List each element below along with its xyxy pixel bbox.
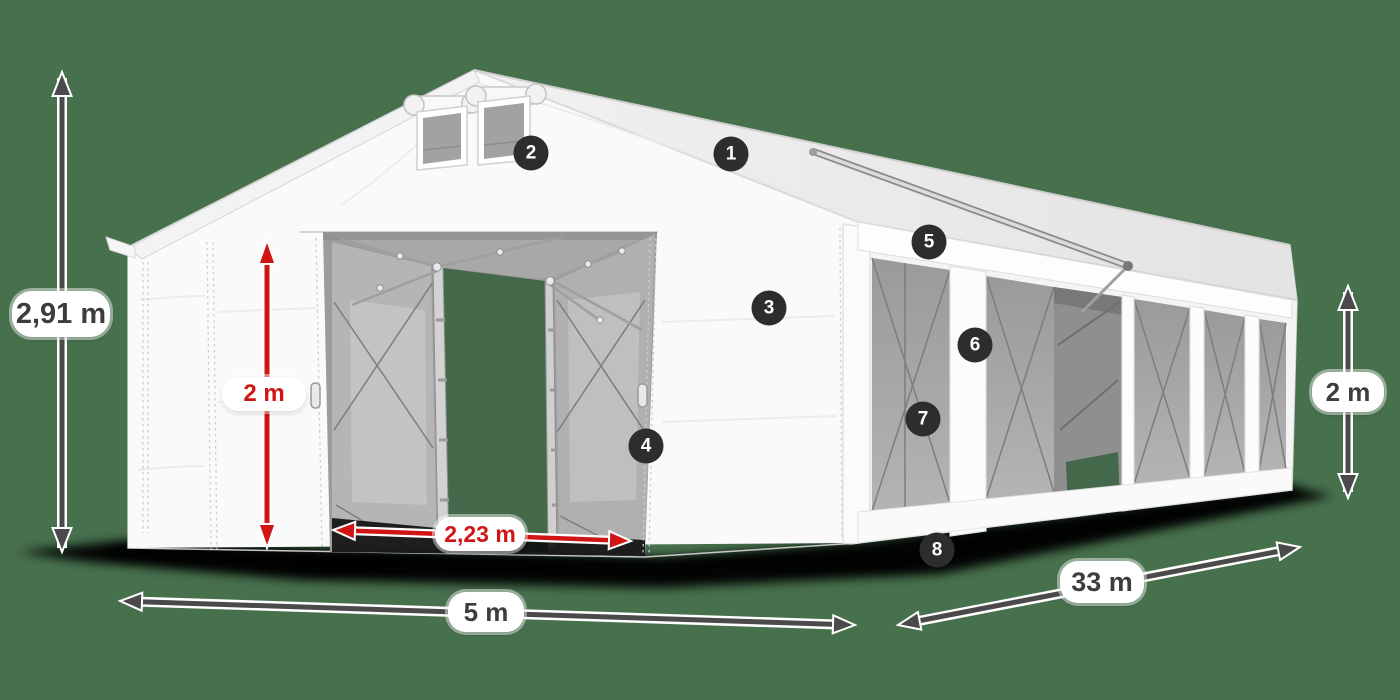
eave-corner bbox=[106, 237, 135, 258]
feature-badge-5: 5 bbox=[912, 225, 947, 260]
feature-badge-6: 6 bbox=[958, 328, 993, 363]
label-length: 33 m bbox=[1060, 561, 1144, 603]
open-passage bbox=[443, 268, 549, 552]
feature-badge-3: 3 bbox=[752, 291, 787, 326]
feature-badge-8: 8 bbox=[920, 533, 955, 568]
door-handle-right bbox=[638, 384, 647, 407]
corner-post bbox=[843, 224, 870, 544]
label-side-height: 2 m bbox=[1312, 372, 1384, 412]
label-front-width: 5 m bbox=[448, 592, 524, 632]
feature-badge-4: 4 bbox=[629, 429, 664, 464]
feature-badge-1: 1 bbox=[714, 137, 749, 172]
label-door-width: 2,23 m bbox=[435, 517, 525, 551]
label-total-height: 2,91 m bbox=[12, 291, 110, 337]
feature-badge-2: 2 bbox=[514, 136, 549, 171]
door-handle-left bbox=[311, 383, 320, 408]
tent-dimension-diagram: 2,91 m 2 m 2,23 m 5 m 33 m 2 m 1 2 3 4 5… bbox=[0, 0, 1400, 700]
feature-badge-7: 7 bbox=[906, 402, 941, 437]
door-opening bbox=[323, 232, 657, 556]
vent-mesh bbox=[423, 113, 461, 164]
label-door-height: 2 m bbox=[222, 377, 306, 411]
open-side-bay bbox=[1054, 287, 1122, 519]
tent-illustration bbox=[0, 0, 1400, 700]
tent-body bbox=[106, 70, 1297, 557]
